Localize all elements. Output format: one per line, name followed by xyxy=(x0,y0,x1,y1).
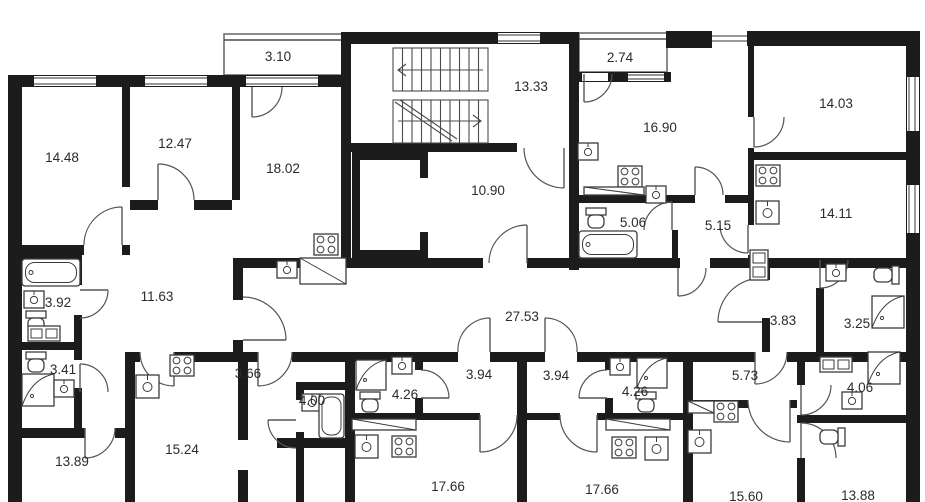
sink-icon xyxy=(24,291,44,308)
room-area-label: 3.92 xyxy=(45,295,71,310)
room-area-label: 4.00 xyxy=(299,393,325,408)
room-area-label: 14.48 xyxy=(45,150,79,165)
room-area-label: 3.25 xyxy=(844,316,870,331)
room-area-label: 3.83 xyxy=(770,313,796,328)
sink-icon xyxy=(578,143,598,160)
room-area-label: 5.15 xyxy=(705,218,731,233)
sink-icon xyxy=(54,380,74,397)
stove-icon xyxy=(714,401,738,422)
room-area-label: 4.26 xyxy=(392,387,418,402)
sink-icon xyxy=(392,357,412,374)
shower-icon xyxy=(356,360,386,390)
washer-icon xyxy=(28,326,60,341)
toilet-icon xyxy=(874,266,899,284)
room-area-label: 12.47 xyxy=(158,136,192,151)
sink-icon xyxy=(756,201,779,224)
floor-plan: 3.10 14.48 12.47 18.02 13.33 10.90 2.74 … xyxy=(0,0,925,502)
room-area-label: 3.10 xyxy=(265,49,291,64)
room-area-label: 16.90 xyxy=(643,120,677,135)
counter-icon xyxy=(352,419,416,430)
room-area-label: 3.66 xyxy=(235,366,261,381)
walls xyxy=(8,31,920,502)
stove-icon xyxy=(170,355,194,376)
room-area-label: 13.33 xyxy=(514,79,548,94)
room-area-label: 14.03 xyxy=(819,96,853,111)
room-area-label: 15.60 xyxy=(729,489,763,502)
room-area-label: 17.66 xyxy=(585,482,619,497)
room-area-label: 4.26 xyxy=(622,384,648,399)
bathtub-icon xyxy=(579,231,637,258)
toilet-icon xyxy=(586,208,606,228)
floor-plan-canvas: 3.10 14.48 12.47 18.02 13.33 10.90 2.74 … xyxy=(0,0,925,502)
room-area-label: 5.06 xyxy=(620,215,646,230)
washer-icon xyxy=(750,250,768,280)
sink-icon xyxy=(610,358,630,375)
sink-icon xyxy=(645,437,668,460)
room-area-label: 18.02 xyxy=(266,161,300,176)
sink-icon xyxy=(826,264,846,281)
toilet-icon xyxy=(820,428,845,446)
room-area-label: 13.89 xyxy=(55,454,89,469)
sink-icon xyxy=(646,186,666,203)
room-area-label: 11.63 xyxy=(141,289,174,304)
counter-icon xyxy=(688,401,714,413)
room-area-label: 2.74 xyxy=(607,50,634,65)
washer-icon xyxy=(820,357,852,372)
bathtub-icon xyxy=(22,259,80,286)
shower-icon xyxy=(22,374,54,406)
room-area-label: 17.66 xyxy=(431,479,465,494)
room-area-label: 3.94 xyxy=(543,368,570,383)
counter-icon xyxy=(606,419,670,430)
shower-icon xyxy=(872,296,904,328)
room-area-label: 3.41 xyxy=(50,362,76,377)
stove-icon xyxy=(756,165,780,186)
room-area-label: 10.90 xyxy=(471,183,505,198)
stove-icon xyxy=(618,166,642,187)
room-area-label: 13.88 xyxy=(841,488,875,502)
stairs-icon xyxy=(393,48,488,143)
stove-icon xyxy=(314,234,338,255)
room-area-label: 4.06 xyxy=(847,380,873,395)
sink-icon xyxy=(355,435,378,458)
counter-icon xyxy=(584,187,644,195)
stove-icon xyxy=(612,437,636,458)
sink-icon xyxy=(277,261,297,278)
sink-icon xyxy=(688,430,711,453)
room-area-label: 14.11 xyxy=(820,206,853,221)
room-area-label: 3.94 xyxy=(466,367,493,382)
room-area-label: 15.24 xyxy=(165,442,199,457)
toilet-icon xyxy=(26,352,46,372)
windows xyxy=(34,33,919,233)
counter-icon xyxy=(300,258,346,284)
toilet-icon xyxy=(360,392,380,412)
room-area-label: 27.53 xyxy=(505,309,539,324)
stove-icon xyxy=(392,436,416,457)
room-area-label: 5.73 xyxy=(732,368,758,383)
sink-icon xyxy=(136,375,159,398)
